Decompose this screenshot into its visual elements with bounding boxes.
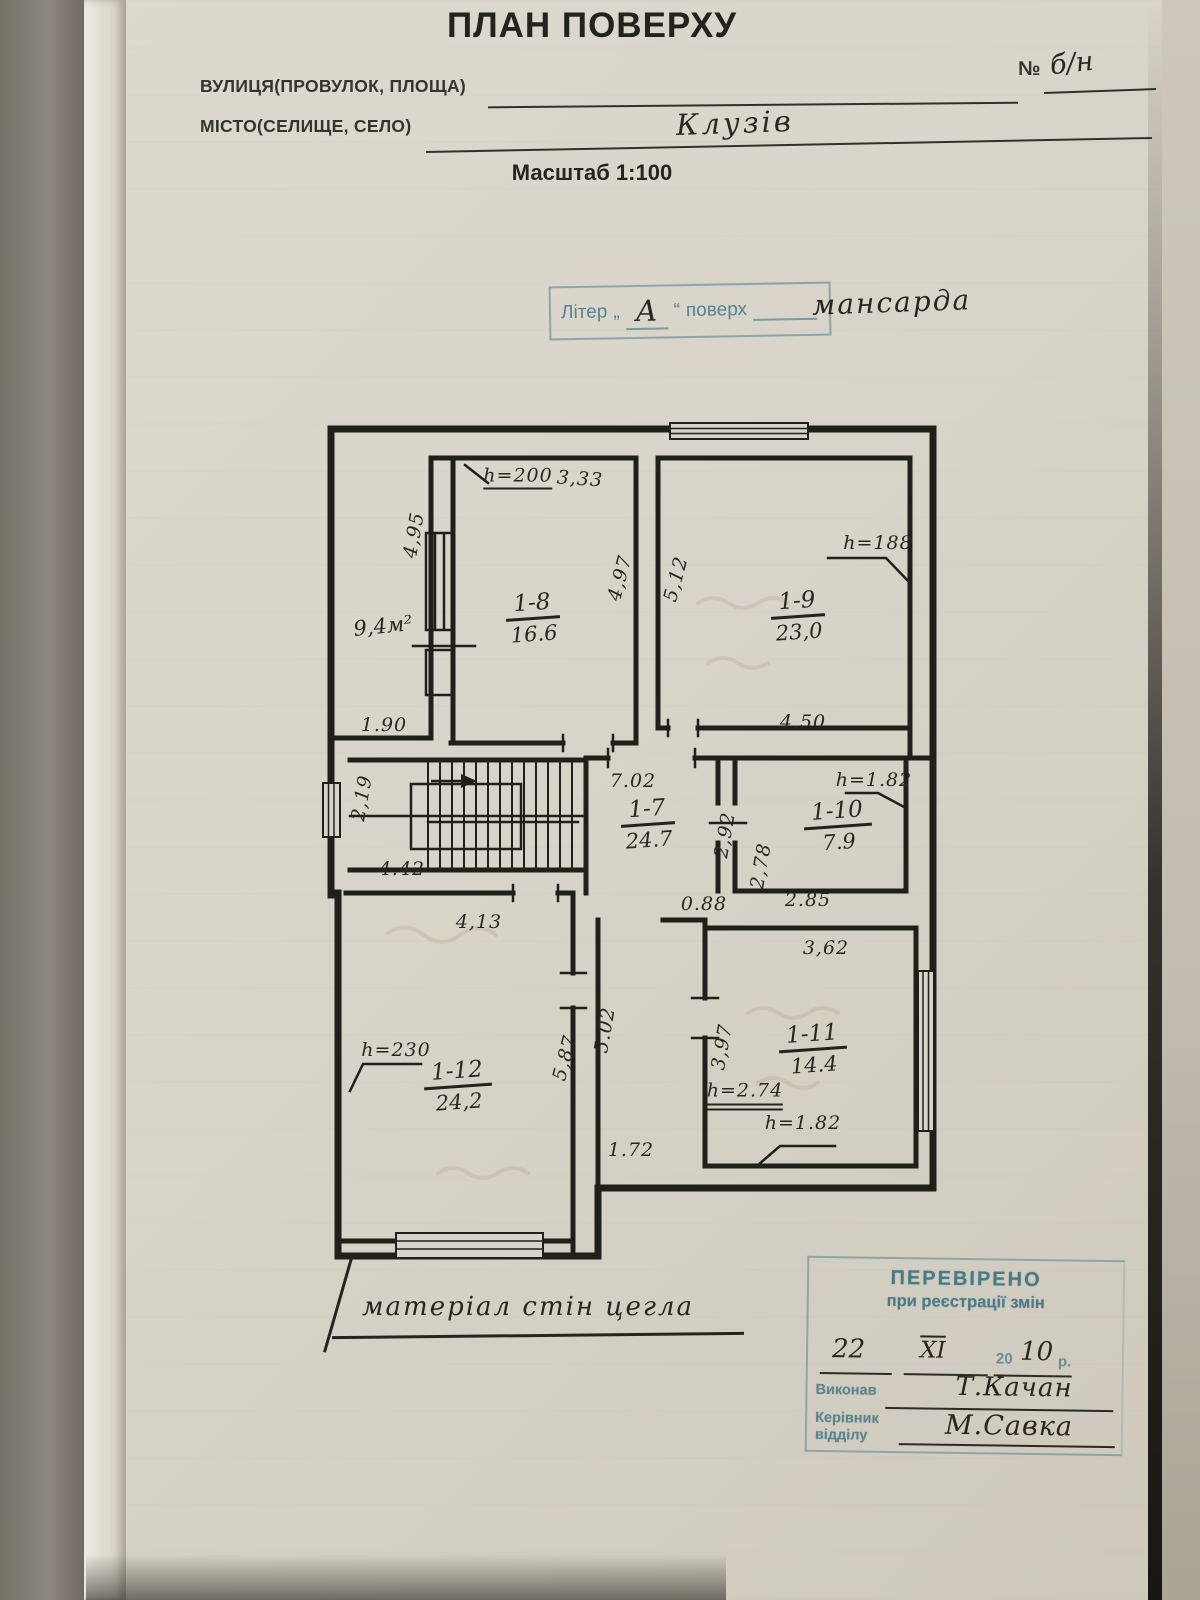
liter-word: Літер xyxy=(561,301,608,324)
liter-close-quote: “ xyxy=(673,300,680,322)
dimension-label: 7.02 xyxy=(610,770,656,792)
stamp-day-underline xyxy=(820,1372,892,1375)
number-value-handwritten: б/н xyxy=(1048,46,1094,81)
room-label-1-7: 1-724.7 xyxy=(598,793,698,856)
liter-floor-value-handwritten: мансарда xyxy=(811,283,971,322)
room-id: 1-10 xyxy=(802,796,872,831)
verification-stamp-title: ПЕРЕВІРЕНО xyxy=(809,1266,1123,1293)
scale-note: Масштаб 1:100 xyxy=(442,160,742,186)
underlying-page-edge xyxy=(84,0,126,1600)
street-field-label: ВУЛИЦЯ(ПРОВУЛОК, ПЛОЩА) xyxy=(200,76,466,97)
verification-stamp-subtitle: при реєстрації змін xyxy=(809,1291,1123,1314)
room-label-1-10: 1-107.9 xyxy=(788,795,888,858)
dimension-label: 2.85 xyxy=(785,889,831,911)
dimension-label: h=1.82 xyxy=(765,1112,841,1134)
room-id: 1-12 xyxy=(422,1056,492,1091)
stamp-month-handwritten: XI xyxy=(920,1337,946,1363)
room-label-1-9: 1-923,0 xyxy=(748,585,848,648)
room-label-1-8: 1-816.6 xyxy=(483,587,583,650)
city-field-label: МІСТО(СЕЛИЩЕ, СЕЛО) xyxy=(200,116,411,137)
room-id: 1-8 xyxy=(505,588,560,622)
dimension-label: 0.88 xyxy=(681,893,727,915)
dimension-label: h=230 xyxy=(361,1039,430,1061)
number-label: № xyxy=(1018,58,1041,81)
scanned-document-photo: { "page": { "title": "ПЛАН ПОВЕРХУ", "sc… xyxy=(0,0,1200,1600)
liter-letter-handwritten: А xyxy=(625,293,668,330)
page-title: ПЛАН ПОВЕРХУ xyxy=(392,6,792,46)
dimension-label: h=1.82 xyxy=(836,769,912,791)
stamp-head-label-line1: Керівник xyxy=(815,1410,879,1427)
stamp-head-underline xyxy=(899,1443,1115,1448)
stamp-year-prefix: 20 xyxy=(996,1350,1013,1367)
room-id: 1-9 xyxy=(770,586,825,620)
material-note-handwritten: матеріал стін цегла xyxy=(362,1292,694,1322)
dimension-label: h=2.74 xyxy=(707,1080,783,1111)
dimension-label: h=188 xyxy=(843,532,912,554)
liter-underline xyxy=(753,298,817,321)
dimension-label: 4.50 xyxy=(780,711,826,733)
liter-floor-word: поверх xyxy=(686,299,748,322)
bottom-shadow xyxy=(86,1554,726,1600)
stamp-executor-value-handwritten: Т.Качан xyxy=(955,1372,1072,1404)
dimension-label: 3,33 xyxy=(556,466,604,491)
book-spine-edge xyxy=(0,0,86,1600)
stamp-day-handwritten: 22 xyxy=(832,1334,866,1364)
dimension-label: 3,62 xyxy=(803,937,849,959)
liter-stamp: Літер „ А “ поверх xyxy=(549,282,832,341)
liter-open-quote: „ xyxy=(613,301,620,323)
room-label-1-11: 1-1114.4 xyxy=(763,1018,863,1081)
stamp-executor-label: Виконав xyxy=(815,1382,876,1399)
verification-stamp: ПЕРЕВІРЕНО при реєстрації змін 22 XI 20 … xyxy=(805,1256,1126,1456)
next-page-edge xyxy=(1162,0,1200,1600)
floor-plan: 9,4м²1-816.61-923,01-724.71-107.91-1114.… xyxy=(318,413,943,1263)
dimension-label: 1.72 xyxy=(608,1139,654,1161)
stamp-year-handwritten: 10 xyxy=(1020,1337,1054,1367)
city-field-value-handwritten: Клузів xyxy=(675,104,794,142)
dimension-label: 4,13 xyxy=(456,911,502,933)
dimension-label: 1.90 xyxy=(361,714,407,736)
dimension-label: 4.42 xyxy=(379,858,425,880)
dimension-label: h=200 xyxy=(483,465,552,490)
room-id: 1-11 xyxy=(777,1019,847,1054)
stamp-head-value-handwritten: М.Савка xyxy=(945,1410,1073,1443)
room-label-1-12: 1-1224,2 xyxy=(408,1055,508,1118)
stamp-year-suffix: р. xyxy=(1058,1353,1072,1370)
stamp-head-label-line2: відділу xyxy=(815,1427,868,1444)
room-id: 1-7 xyxy=(620,794,675,828)
